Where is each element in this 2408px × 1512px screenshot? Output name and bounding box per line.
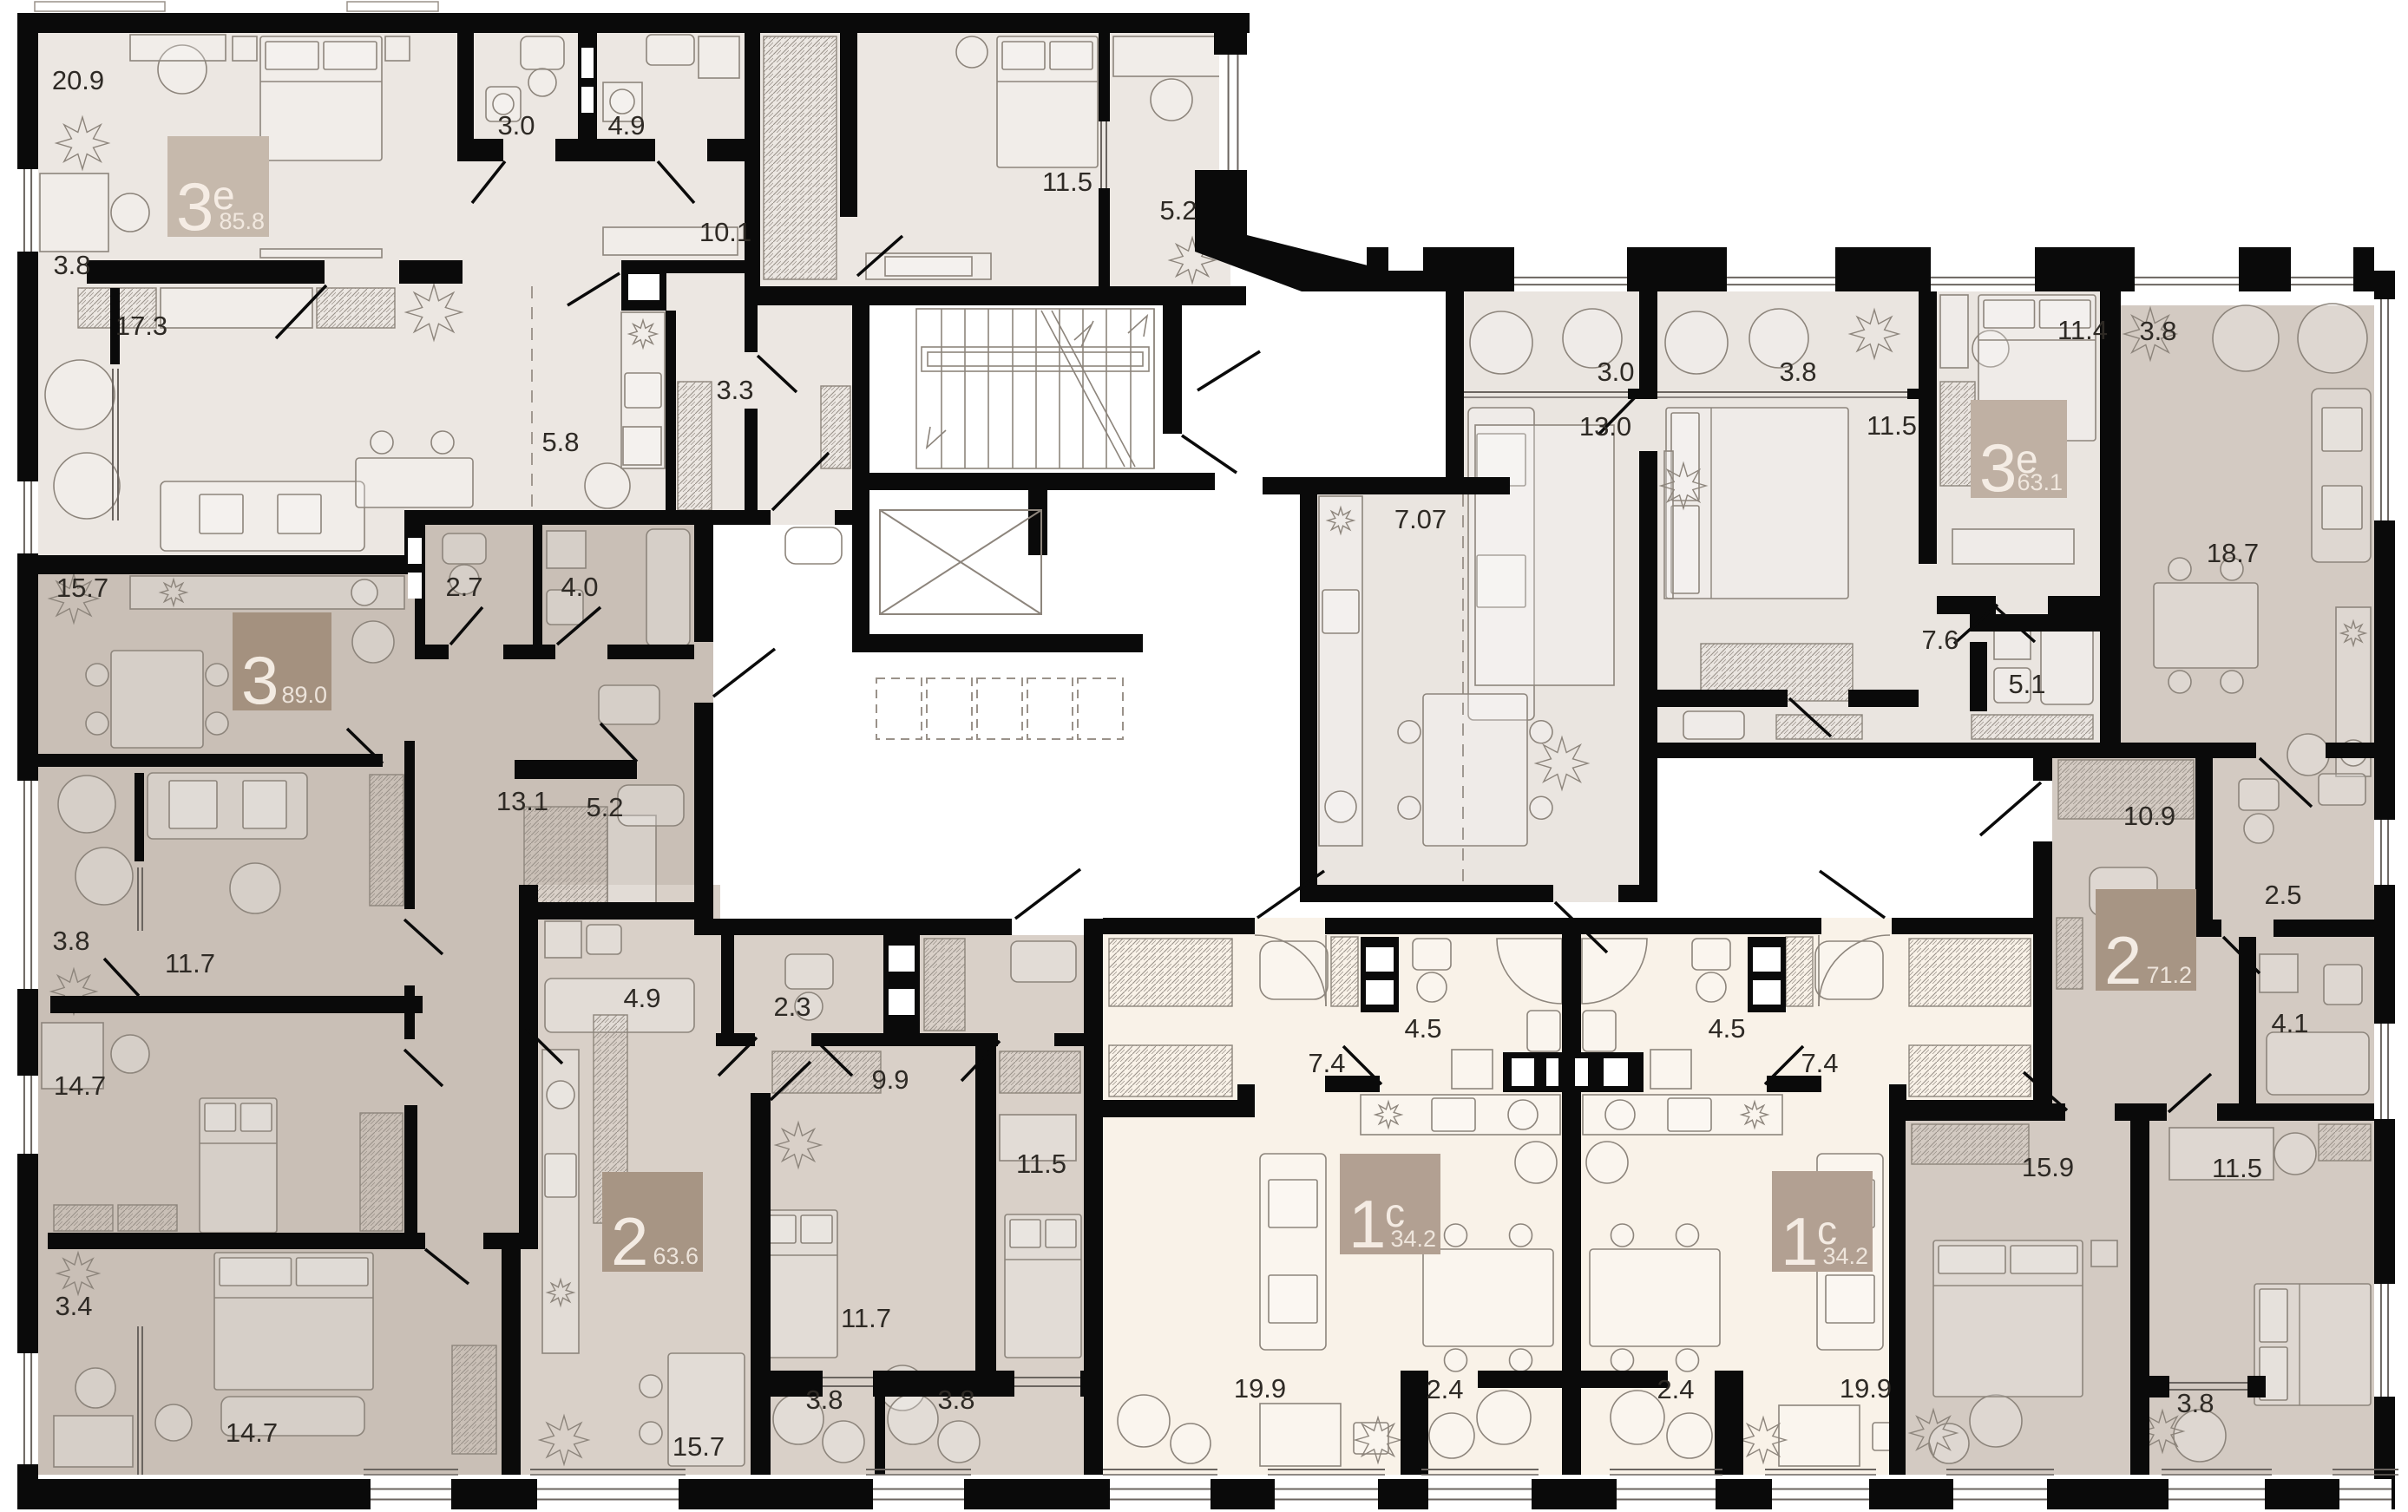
svg-text:5.2: 5.2 — [586, 792, 623, 822]
svg-text:63.6: 63.6 — [653, 1243, 699, 1269]
svg-text:3: 3 — [1979, 429, 2017, 506]
svg-text:3.4: 3.4 — [55, 1291, 92, 1321]
svg-text:3.8: 3.8 — [52, 926, 89, 956]
svg-text:14.7: 14.7 — [54, 1070, 106, 1101]
svg-text:5.2: 5.2 — [1159, 195, 1197, 226]
svg-text:15.7: 15.7 — [56, 573, 108, 603]
svg-text:85.8: 85.8 — [219, 208, 265, 234]
svg-text:18.7: 18.7 — [2207, 538, 2259, 568]
svg-text:17.3: 17.3 — [115, 311, 167, 341]
svg-text:4.1: 4.1 — [2271, 1008, 2308, 1038]
svg-text:11.5: 11.5 — [1867, 410, 1917, 441]
svg-text:1: 1 — [1348, 1186, 1386, 1262]
svg-text:15.7: 15.7 — [673, 1431, 725, 1462]
svg-text:19.9: 19.9 — [1234, 1373, 1286, 1404]
svg-text:4.5: 4.5 — [1708, 1013, 1745, 1044]
svg-text:14.7: 14.7 — [226, 1417, 278, 1448]
svg-text:4.9: 4.9 — [623, 983, 660, 1013]
svg-text:2.4: 2.4 — [1426, 1374, 1463, 1404]
svg-text:9.9: 9.9 — [871, 1064, 909, 1095]
svg-text:4.0: 4.0 — [561, 572, 598, 602]
svg-text:5.1: 5.1 — [2008, 669, 2045, 699]
svg-text:3.8: 3.8 — [2176, 1388, 2214, 1418]
svg-text:11.5: 11.5 — [1042, 167, 1092, 197]
svg-text:4.9: 4.9 — [607, 110, 645, 141]
svg-text:3.8: 3.8 — [937, 1384, 974, 1415]
svg-text:19.9: 19.9 — [1840, 1373, 1892, 1404]
svg-text:2.4: 2.4 — [1657, 1374, 1694, 1404]
svg-text:13.1: 13.1 — [496, 786, 548, 816]
svg-text:3: 3 — [241, 642, 279, 718]
svg-text:2.5: 2.5 — [2264, 880, 2301, 910]
svg-text:15.9: 15.9 — [2022, 1152, 2074, 1182]
svg-text:11.4: 11.4 — [2057, 315, 2108, 345]
svg-text:10.1: 10.1 — [699, 217, 751, 247]
svg-text:3: 3 — [176, 168, 213, 245]
svg-text:10.9: 10.9 — [2123, 801, 2175, 831]
svg-text:71.2: 71.2 — [2146, 962, 2192, 988]
svg-text:4.5: 4.5 — [1404, 1013, 1441, 1044]
svg-text:13.0: 13.0 — [1579, 411, 1631, 442]
svg-text:2: 2 — [611, 1203, 648, 1280]
svg-text:63.1: 63.1 — [2017, 469, 2063, 495]
svg-text:34.2: 34.2 — [1390, 1226, 1436, 1252]
svg-text:3.0: 3.0 — [497, 110, 535, 141]
svg-text:3.0: 3.0 — [1597, 357, 1634, 387]
svg-text:2: 2 — [2104, 922, 2142, 998]
svg-text:3.3: 3.3 — [716, 375, 753, 405]
svg-text:11.5: 11.5 — [2212, 1153, 2262, 1183]
svg-text:5.8: 5.8 — [541, 427, 579, 457]
svg-text:11.7: 11.7 — [841, 1303, 891, 1333]
svg-text:20.9: 20.9 — [52, 65, 104, 95]
svg-text:3.8: 3.8 — [2139, 316, 2176, 346]
svg-text:11.7: 11.7 — [165, 948, 215, 979]
svg-text:2.3: 2.3 — [773, 992, 810, 1022]
svg-text:7.4: 7.4 — [1308, 1048, 1345, 1078]
svg-text:89.0: 89.0 — [281, 682, 327, 708]
svg-text:34.2: 34.2 — [1822, 1243, 1868, 1269]
svg-text:2.7: 2.7 — [445, 572, 482, 602]
svg-text:3.8: 3.8 — [1779, 357, 1816, 387]
svg-text:7.4: 7.4 — [1801, 1048, 1838, 1078]
svg-text:1: 1 — [1781, 1203, 1818, 1280]
svg-text:3.8: 3.8 — [53, 250, 90, 280]
svg-text:11.5: 11.5 — [1016, 1149, 1066, 1179]
svg-text:7.07: 7.07 — [1394, 504, 1447, 534]
svg-text:3.8: 3.8 — [805, 1384, 843, 1415]
svg-text:7.6: 7.6 — [1921, 625, 1959, 655]
